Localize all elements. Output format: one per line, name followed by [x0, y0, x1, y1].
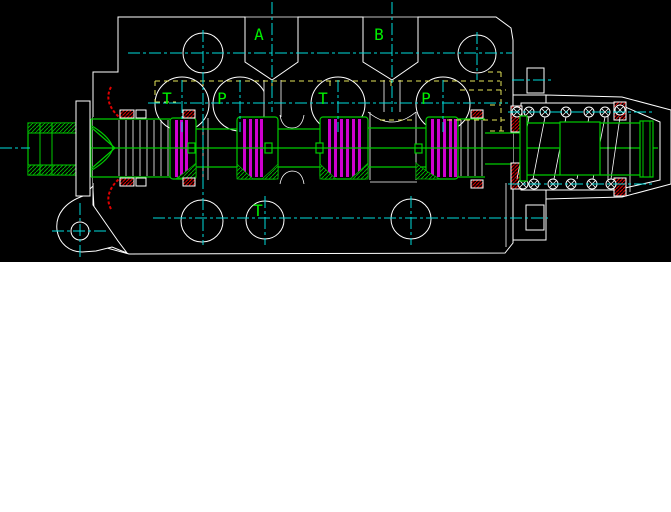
paper-blank-area — [0, 262, 671, 512]
label-port-t2: T — [318, 89, 328, 108]
label-port-t3: T — [253, 201, 263, 220]
spring-seat — [520, 116, 527, 181]
label-port-t1: T — [162, 89, 172, 108]
port-circle-bottom-1 — [181, 200, 223, 242]
cad-application-stage: A B T P T P T — [0, 0, 671, 512]
label-port-p2: P — [421, 89, 431, 108]
label-port-p1: P — [217, 89, 227, 108]
plunger-end-disc — [640, 121, 653, 177]
label-port-b: B — [374, 25, 384, 44]
cad-drawing-canvas[interactable]: A B T P T P T — [0, 0, 671, 512]
label-port-a: A — [254, 25, 264, 44]
end-washer — [76, 101, 90, 196]
plunger-block — [560, 122, 600, 175]
